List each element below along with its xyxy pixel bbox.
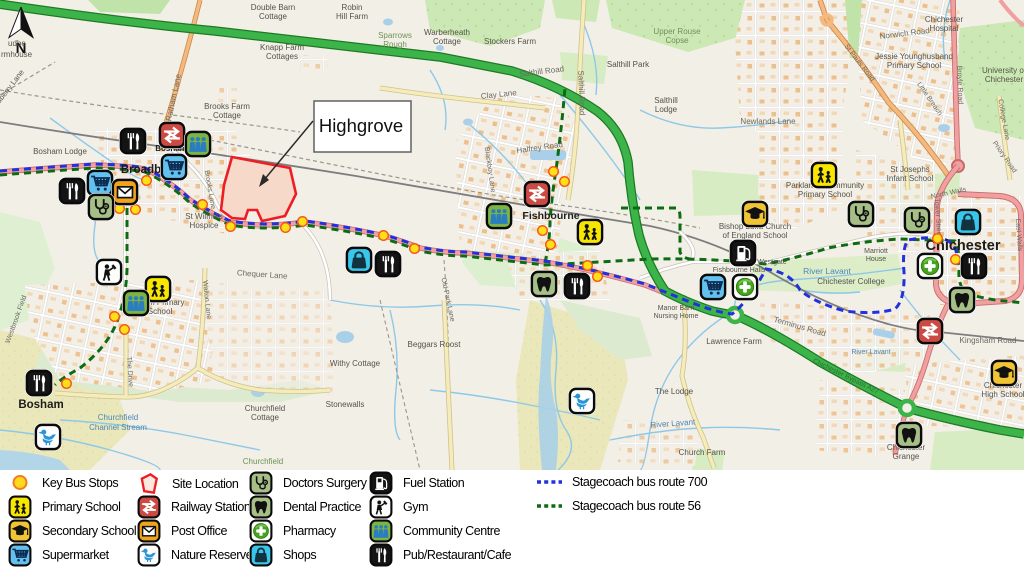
- svg-text:Churchfield: Churchfield: [245, 404, 285, 413]
- svg-text:Withy Cottage: Withy Cottage: [330, 359, 381, 368]
- svg-text:Primary School: Primary School: [798, 190, 852, 199]
- svg-text:Double Barn: Double Barn: [251, 3, 295, 12]
- svg-text:The Lodge: The Lodge: [655, 387, 694, 396]
- svg-text:Grange: Grange: [893, 452, 920, 461]
- svg-text:Cottage: Cottage: [213, 111, 242, 120]
- svg-text:Upper Rouse: Upper Rouse: [653, 27, 701, 36]
- svg-text:University of: University of: [982, 66, 1024, 75]
- svg-text:Highgrove: Highgrove: [319, 115, 403, 136]
- svg-text:Jessie Younghusband: Jessie Younghusband: [875, 52, 953, 61]
- svg-text:rmhouse: rmhouse: [1, 50, 33, 59]
- svg-text:Churchfield: Churchfield: [98, 413, 138, 422]
- svg-text:Stockers Farm: Stockers Farm: [484, 37, 536, 46]
- svg-text:Rough: Rough: [383, 40, 407, 49]
- svg-text:Cottages: Cottages: [266, 52, 298, 61]
- svg-text:Copse: Copse: [665, 36, 689, 45]
- svg-text:Lawrence Farm: Lawrence Farm: [706, 337, 762, 346]
- svg-text:Warberheath: Warberheath: [424, 28, 470, 37]
- svg-text:Robin: Robin: [342, 3, 363, 12]
- svg-text:Sparrows: Sparrows: [378, 31, 412, 40]
- svg-text:Chichester: Chichester: [925, 15, 964, 24]
- svg-text:udbe: udbe: [8, 39, 26, 48]
- svg-text:Nursing Home: Nursing Home: [654, 313, 699, 320]
- svg-text:Chichester College: Chichester College: [817, 277, 885, 286]
- svg-text:Cottage: Cottage: [251, 413, 280, 422]
- svg-text:Hill Farm: Hill Farm: [336, 12, 368, 21]
- svg-text:Salthill Road: Salthill Road: [576, 70, 587, 115]
- svg-text:Lodge: Lodge: [655, 105, 678, 114]
- svg-text:Cottage: Cottage: [433, 37, 462, 46]
- svg-text:Broyle Road: Broyle Road: [955, 66, 963, 105]
- svg-text:High School: High School: [981, 390, 1024, 399]
- svg-text:Chichester: Chichester: [985, 75, 1024, 84]
- svg-text:Stonewalls: Stonewalls: [326, 400, 365, 409]
- svg-text:Broadb: Broadb: [121, 164, 161, 176]
- svg-text:of England School: of England School: [723, 231, 788, 240]
- svg-text:Church Farm: Church Farm: [679, 448, 726, 457]
- svg-text:Churchfield: Churchfield: [243, 457, 283, 466]
- svg-text:Manor Barn: Manor Barn: [658, 305, 695, 312]
- svg-text:St Josephs: St Josephs: [890, 165, 930, 174]
- svg-text:St Wilfrid's: St Wilfrid's: [185, 212, 223, 221]
- svg-text:Fishbourne: Fishbourne: [522, 210, 579, 222]
- svg-text:Salthill: Salthill: [654, 96, 678, 105]
- svg-text:Marriott: Marriott: [864, 248, 888, 255]
- svg-text:Kingsham Road: Kingsham Road: [960, 336, 1017, 345]
- svg-text:River Lavant: River Lavant: [851, 349, 890, 356]
- svg-text:Infant School: Infant School: [887, 174, 934, 183]
- svg-text:Fishbourne Halls: Fishbourne Halls: [713, 267, 766, 274]
- svg-text:Westgate: Westgate: [757, 259, 787, 266]
- svg-text:House: House: [866, 256, 886, 263]
- svg-text:Brooks Farm: Brooks Farm: [204, 102, 250, 111]
- svg-text:Bosham Lodge: Bosham Lodge: [33, 147, 87, 156]
- svg-text:School: School: [148, 307, 173, 316]
- svg-text:Knapp Farm: Knapp Farm: [260, 43, 304, 52]
- svg-text:Cottage: Cottage: [259, 12, 288, 21]
- svg-text:Channel Stream: Channel Stream: [89, 423, 147, 432]
- svg-text:Hospital: Hospital: [930, 24, 959, 33]
- svg-text:Newlands Lane: Newlands Lane: [740, 117, 796, 126]
- svg-text:Beggars Roost: Beggars Roost: [408, 340, 462, 349]
- svg-text:Primary School: Primary School: [887, 61, 941, 70]
- svg-text:Hospice: Hospice: [190, 221, 219, 230]
- svg-text:River Lavant: River Lavant: [803, 266, 851, 276]
- svg-text:Salthill Park: Salthill Park: [607, 60, 650, 69]
- svg-text:Bosham: Bosham: [18, 399, 63, 411]
